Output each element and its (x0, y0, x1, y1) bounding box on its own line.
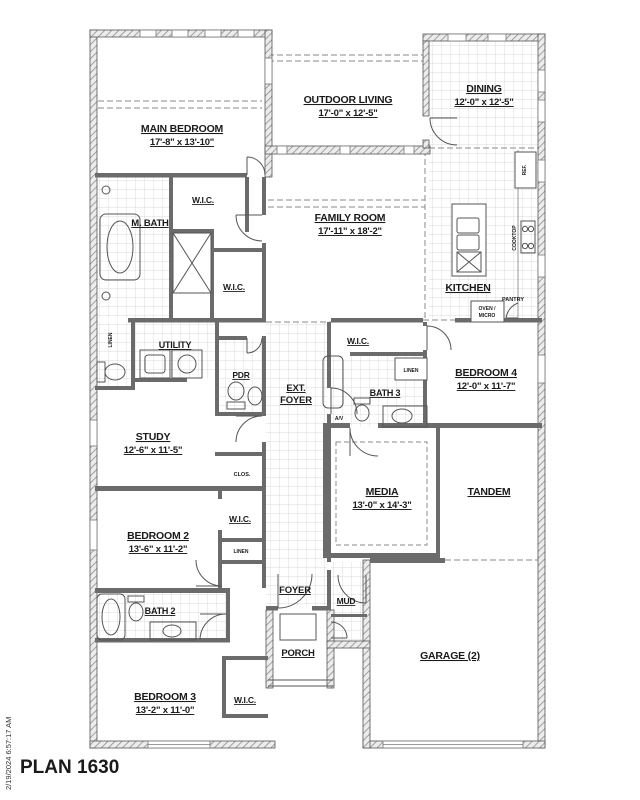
label-main-bedroom: MAIN BEDROOM (141, 123, 224, 135)
label-wic-bed4: W.I.C. (347, 336, 369, 346)
label-wic-main-lower: W.I.C. (223, 282, 245, 292)
dims-main-bedroom: 17'-8" x 13'-10" (150, 137, 214, 148)
label-wic-bed3: W.I.C. (234, 695, 256, 705)
label-family-room: FAMILY ROOM (315, 212, 386, 224)
label-kitchen: KITCHEN (445, 282, 490, 294)
dims-media: 13'-0" x 14'-3" (352, 500, 411, 511)
label-mud: MUD (337, 596, 356, 606)
label-media: MEDIA (366, 486, 399, 498)
dims-bedroom4: 12'-0" x 11'-7" (457, 381, 516, 392)
label-cooktop: COOKTOP (512, 225, 518, 251)
label-porch: PORCH (281, 648, 315, 659)
label-bath2: BATH 2 (145, 606, 176, 616)
dims-bedroom2: 13'-6" x 11'-2" (129, 544, 188, 555)
label-garage: GARAGE (2) (420, 650, 480, 662)
shower-glyph (173, 233, 211, 293)
dims-dining: 12'-0" x 12'-5" (454, 97, 513, 108)
label-pantry: PANTRY (502, 297, 524, 303)
dims-bedroom3: 13'-2" x 11'-0" (136, 705, 195, 716)
label-wic-main-upper: W.I.C. (192, 195, 214, 205)
floor-plan-drawing: MAIN BEDROOM 17'-8" x 13'-10" OUTDOOR LI… (0, 0, 640, 800)
dims-outdoor-living: 17'-0" x 12'-5" (318, 108, 377, 119)
label-av-closet: A/V (335, 416, 344, 422)
dims-study: 12'-6" x 11'-5" (124, 445, 183, 456)
label-utility: UTILITY (159, 340, 192, 350)
label-m-bath: M. BATH (131, 218, 169, 229)
sheet-text: PLAN 1630 2/19/2024 6:57:17 AM (4, 717, 119, 790)
label-linen-bath3: LINEN (404, 368, 419, 374)
kitchen-island-glyph (452, 204, 486, 276)
label-dining: DINING (466, 83, 502, 95)
print-timestamp: 2/19/2024 6:57:17 AM (4, 717, 13, 790)
label-study: STUDY (136, 431, 171, 443)
label-oven-1: OVEN / (479, 306, 497, 312)
dims-family-room: 17'-11" x 18'-2" (318, 226, 382, 237)
label-tandem: TANDEM (468, 486, 511, 498)
label-bedroom3: BEDROOM 3 (134, 691, 196, 703)
label-wic-bed2: W.I.C. (229, 514, 251, 524)
plan-title: PLAN 1630 (20, 757, 119, 778)
label-ext-foyer-2: FOYER (280, 395, 312, 406)
label-powder: PDR (232, 370, 249, 380)
label-bedroom4: BEDROOM 4 (455, 367, 517, 379)
label-linen-bed2: LINEN (234, 549, 249, 555)
label-refrigerator: REF. (522, 164, 528, 175)
label-oven-2: MICRO (479, 313, 496, 319)
label-foyer: FOYER (279, 585, 311, 596)
label-bath3: BATH 3 (370, 388, 401, 398)
label-outdoor-living: OUTDOOR LIVING (304, 94, 393, 106)
label-clos-study: CLOS. (234, 472, 251, 478)
label-linen-hall: LINEN (108, 332, 114, 347)
label-ext-foyer-1: EXT. (286, 383, 305, 394)
label-bedroom2: BEDROOM 2 (127, 530, 189, 542)
floor-plan-sheet: MAIN BEDROOM 17'-8" x 13'-10" OUTDOOR LI… (0, 0, 640, 800)
